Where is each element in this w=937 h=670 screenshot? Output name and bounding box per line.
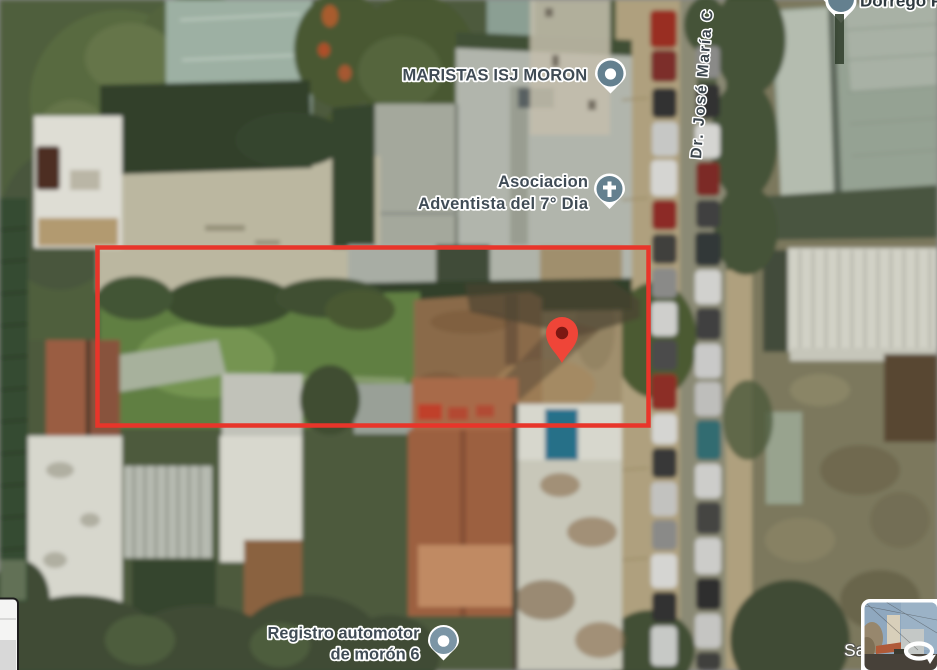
svg-text:MARISTAS ISJ MORON: MARISTAS ISJ MORON bbox=[403, 67, 588, 85]
svg-text:Registro automotor: Registro automotor bbox=[268, 625, 421, 643]
svg-text:Asociacion: Asociacion bbox=[498, 173, 588, 191]
svg-text:Adventista del 7° Dia: Adventista del 7° Dia bbox=[418, 195, 589, 213]
svg-text:Dorrego P: Dorrego P bbox=[860, 0, 937, 11]
svg-text:de morón 6: de morón 6 bbox=[331, 646, 420, 664]
